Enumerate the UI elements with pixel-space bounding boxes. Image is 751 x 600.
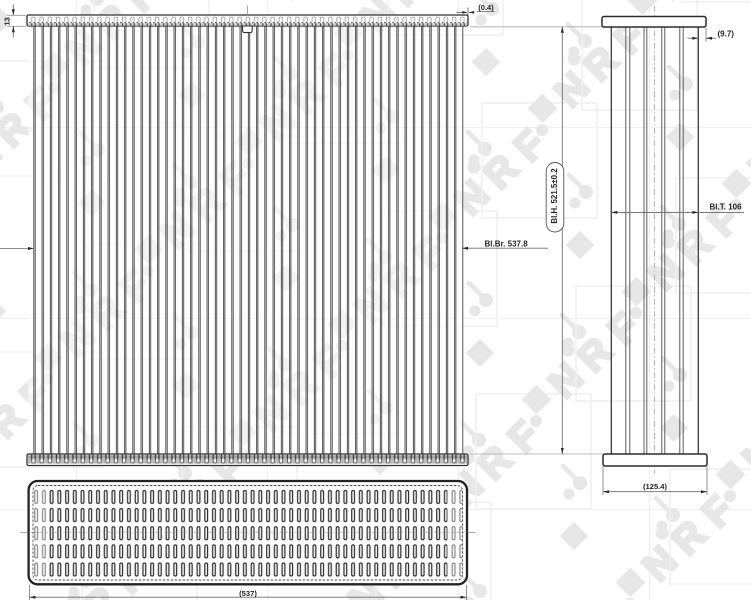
svg-text:Bl.T. 106: Bl.T. 106 bbox=[710, 203, 743, 212]
svg-text:Bl.H. 521.5±0.2: Bl.H. 521.5±0.2 bbox=[550, 168, 559, 224]
svg-text:(9.7): (9.7) bbox=[718, 30, 735, 39]
svg-text:(0.4): (0.4) bbox=[478, 3, 494, 12]
svg-text:(125.4): (125.4) bbox=[643, 482, 668, 491]
svg-text:13: 13 bbox=[3, 17, 12, 25]
svg-text:Bl.Br. 537.8: Bl.Br. 537.8 bbox=[485, 239, 529, 248]
svg-text:(537): (537) bbox=[239, 589, 257, 598]
